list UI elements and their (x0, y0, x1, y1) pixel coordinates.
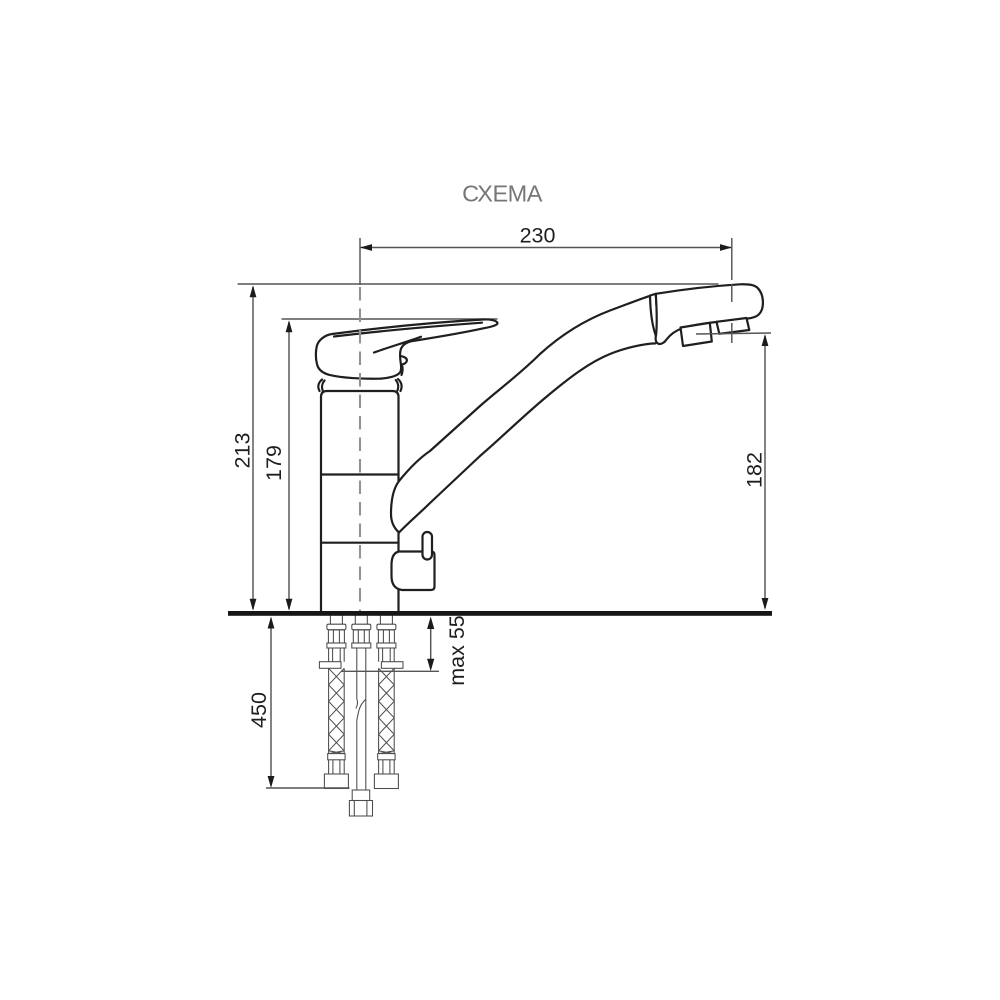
svg-text:230: 230 (520, 224, 556, 248)
svg-text:max 55: max 55 (445, 615, 469, 686)
svg-text:179: 179 (262, 445, 286, 481)
svg-text:СХЕМА: СХЕМА (462, 181, 543, 207)
svg-text:182: 182 (743, 452, 767, 488)
svg-text:213: 213 (231, 433, 255, 469)
svg-text:450: 450 (247, 692, 271, 728)
